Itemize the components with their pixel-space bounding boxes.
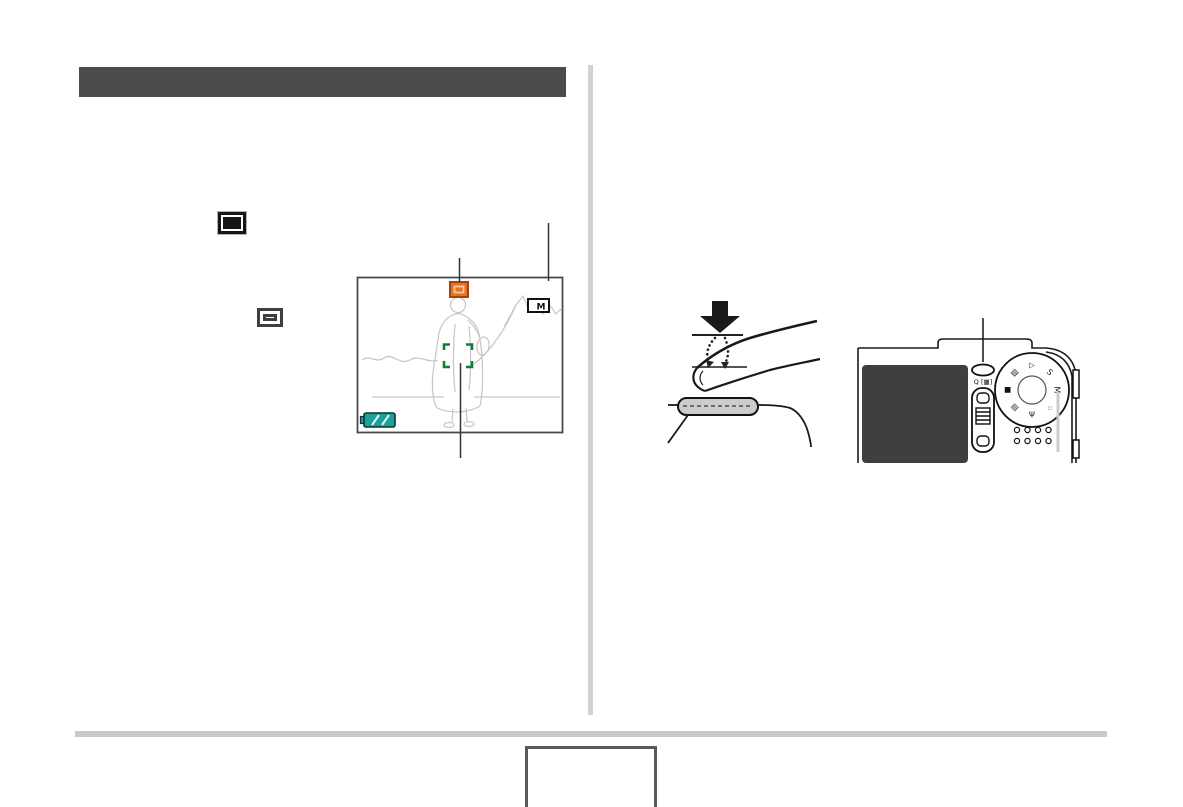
section-header-bar	[79, 67, 566, 97]
half-press-dashed-arrow	[707, 338, 728, 363]
icon-core	[223, 217, 241, 229]
operation-lamp-button	[972, 365, 994, 376]
mode-dial-icon-snapshot: ■	[1003, 386, 1012, 393]
battery-indicator-icon	[361, 413, 396, 427]
shutter-button	[678, 398, 758, 415]
press-down-arrow-icon	[700, 301, 740, 333]
focus-mode-icon	[450, 282, 468, 297]
lcd-monitor-illustration: M	[356, 220, 565, 462]
mode-dial-icon-play: ▷	[1029, 361, 1035, 370]
memory-indicator-label: M	[537, 303, 546, 313]
focus-frame-outline-icon	[257, 308, 283, 327]
footer-rule	[75, 731, 1107, 737]
column-divider	[588, 65, 593, 715]
mode-dial-icon-voice: Ψ	[1029, 411, 1035, 420]
camera-back-illustration: Q [▦] ▧ ▷ S M ⁘ Ψ ▤ ■	[850, 312, 1085, 464]
memory-indicator-icon: M	[528, 299, 549, 313]
focus-frame-filled-icon	[217, 211, 247, 235]
zoom-rocker	[972, 388, 994, 452]
page-number-box	[525, 746, 657, 807]
zoom-rocker-label: Q [▦]	[974, 378, 992, 386]
shutter-press-illustration	[655, 296, 820, 448]
manual-page: { "header": { "bar_color": "#4b4b4b" }, …	[0, 0, 1183, 800]
finger-sketch	[693, 321, 820, 391]
speaker-holes	[1014, 427, 1051, 443]
lcd-screen	[862, 365, 968, 463]
icon-inner-frame	[263, 314, 277, 321]
